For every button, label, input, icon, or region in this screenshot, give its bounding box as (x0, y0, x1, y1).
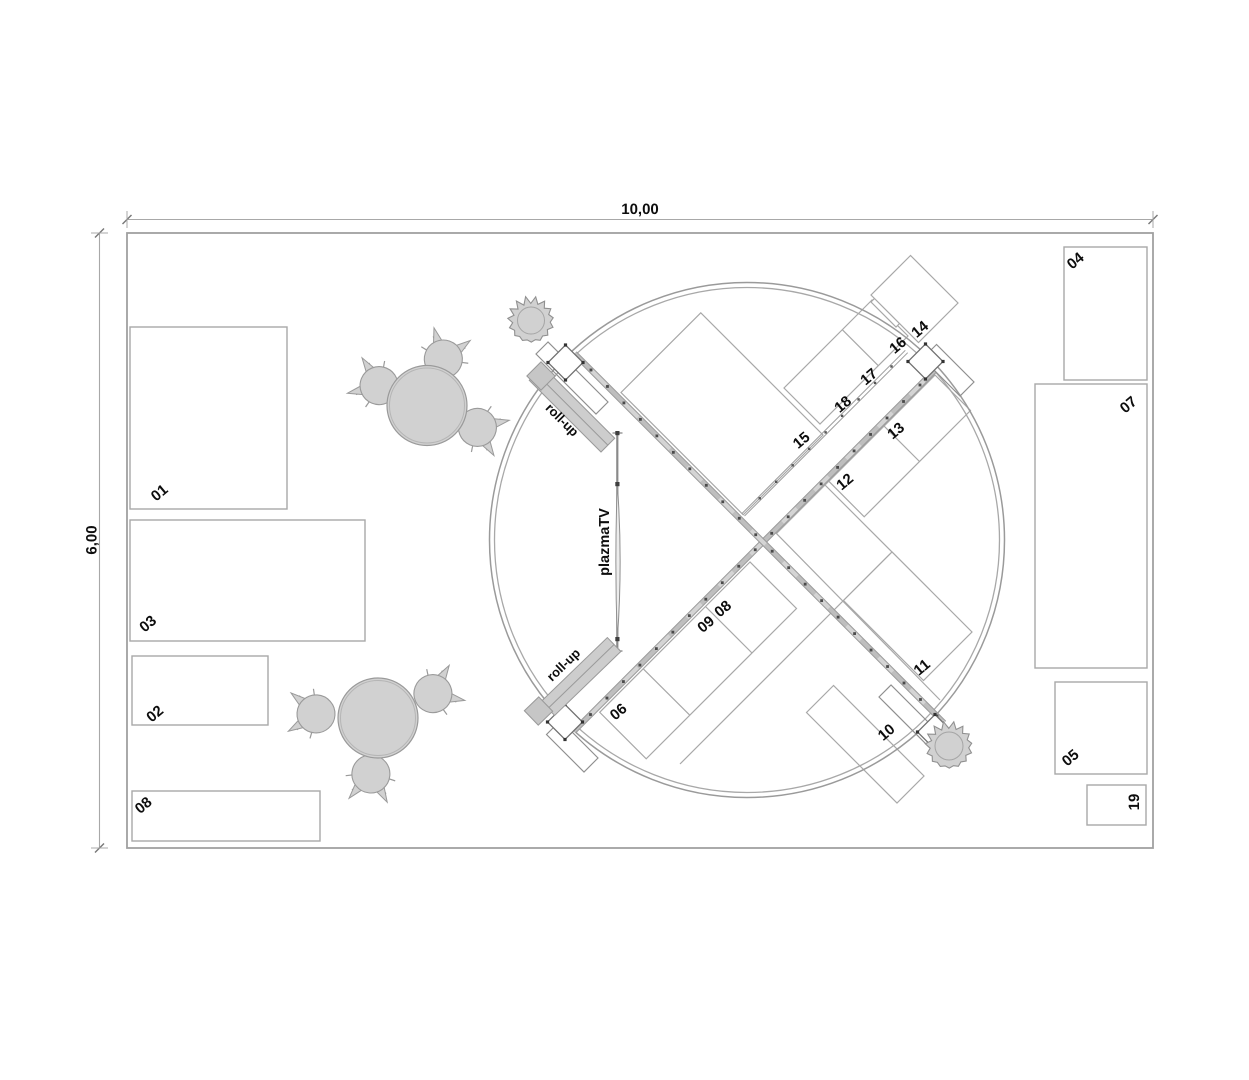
svg-text:plazmaTV: plazmaTV (597, 508, 613, 576)
svg-text:19: 19 (1126, 794, 1143, 811)
svg-text:6,00: 6,00 (84, 525, 101, 554)
svg-text:10,00: 10,00 (621, 201, 659, 218)
